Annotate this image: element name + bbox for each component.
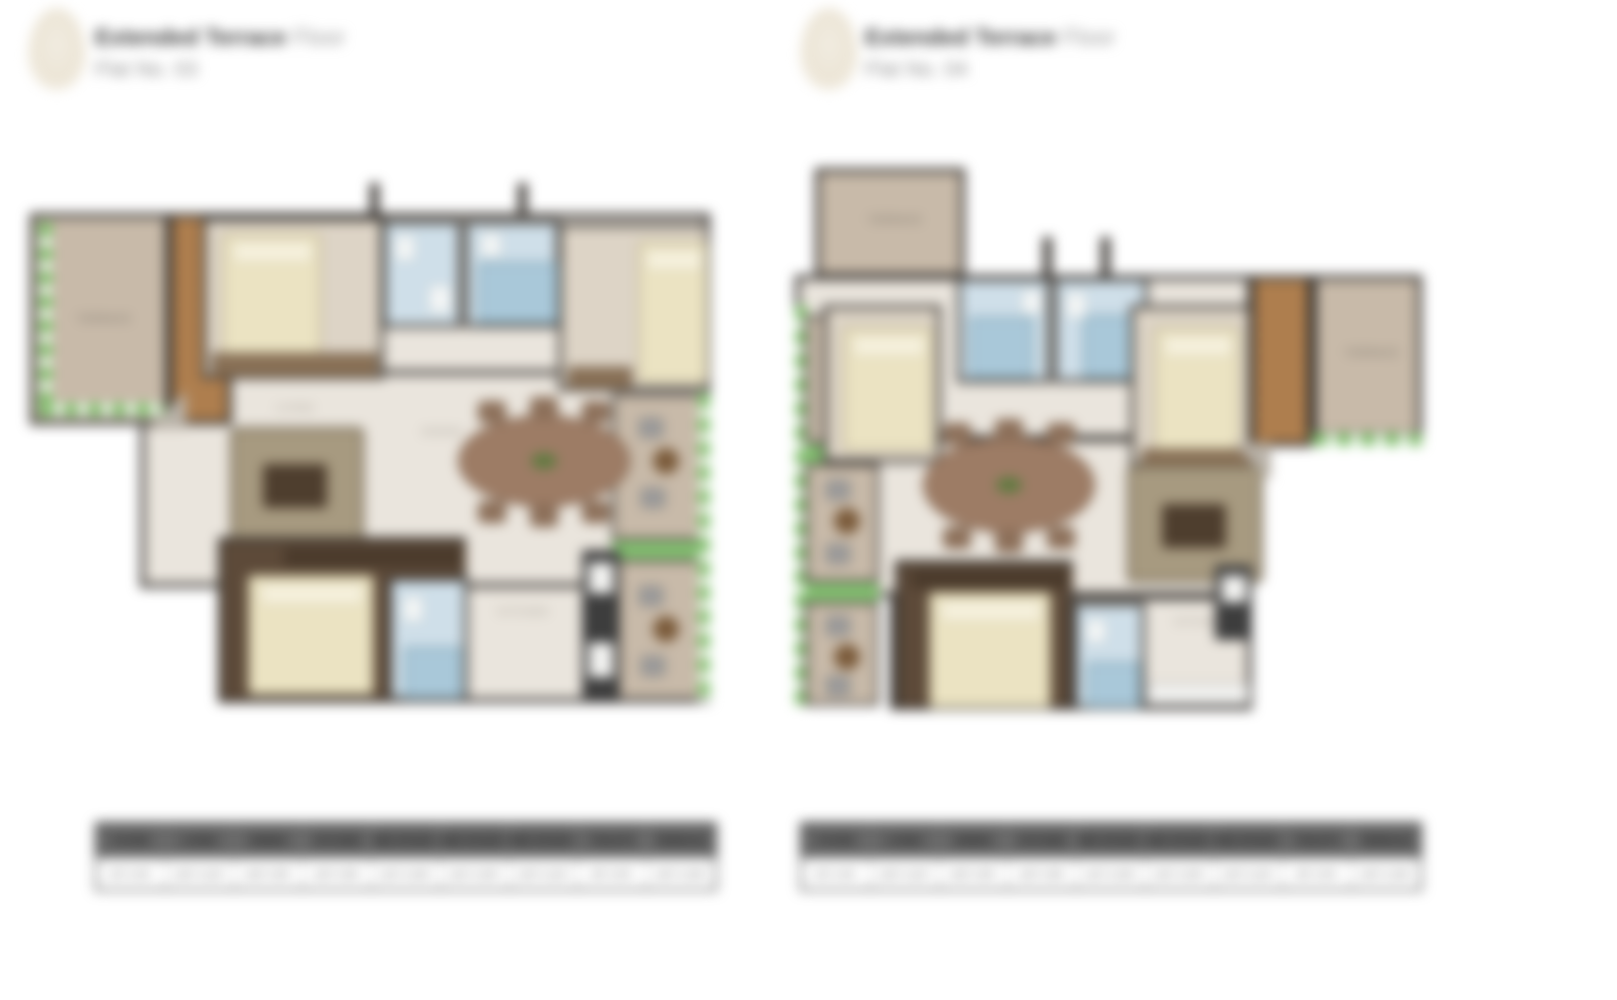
centerpiece [996,477,1022,493]
schedule-header-cell: DINING [940,824,1009,857]
wardrobe [212,353,378,377]
wardrobe [282,545,466,569]
schedule-header-row: FOYER LIVING DINING KITCHEN BED ROOM 1 B… [802,824,1420,857]
flat-number: Flat No. 03 [95,55,345,85]
dining-chair [582,501,610,523]
pillow [232,241,314,263]
toilet-2 [464,220,560,328]
chair [639,418,663,438]
schedule-value-cell: 12'6" X 11'0" [871,858,940,889]
balcony-2 [612,559,710,701]
dining-chair [995,531,1023,553]
pillow [940,600,1041,622]
schedule-header-cell: LIVING [166,824,235,857]
bedroom-3 [558,223,710,391]
schedule-value-cell: 12'0" X 11'0" [510,858,579,889]
wash-basin [1085,618,1107,644]
kitchen-counter [1215,565,1252,640]
wash-basin [1021,289,1043,315]
bed [843,327,933,451]
dining-chair [530,505,558,527]
page: Extended Terrace Floor Flat No. 03 Exten… [0,0,1617,1000]
schedule-header-cell: BED ROOM 3 [1215,824,1284,857]
chair [641,488,665,508]
toilet-1 [957,277,1051,383]
plan-header-right: Extended Terrace Floor Flat No. 04 [865,22,1115,85]
wash-basin [480,232,502,258]
dining-chair [943,423,971,445]
wall-stub [1043,237,1052,275]
schedule-header-cell: FOYER [97,824,166,857]
pillow [852,335,926,357]
flat-number: Flat No. 04 [865,55,1115,85]
round-table [834,508,860,534]
terrace: TERRACE [1312,275,1422,437]
dining-chair [995,419,1023,441]
living-label: LIVING [276,403,315,414]
schedule-value-cell: 11'0" X 10'6" [372,858,441,889]
round-table [834,644,860,670]
toilet-1 [382,220,462,328]
schedule-value-cell: 11'0" X 10'6" [1077,858,1146,889]
schedule-header-cell: FOYER [802,824,871,857]
schedule-header-cell: TERRACE [1352,824,1420,857]
dining-chair [582,401,610,423]
schedule-value-cell: 11'6" X 10'0" [441,858,510,889]
round-table [653,448,679,474]
terrace-label: TERRACE [1345,348,1400,359]
schedule-header-cell: KITCHEN [1008,824,1077,857]
bed [929,592,1051,708]
planter-band [805,583,879,601]
schedule-value-cell: 10'6" X 8'0" [235,858,304,889]
dining-chair [530,397,558,419]
schedule-header-cell: BED ROOM 1 [1077,824,1146,857]
page-title: Extended Terrace Floor [95,22,345,52]
balcony-3 [805,601,879,706]
floor-plan-flat-04: TERRACE [795,165,1425,740]
plant-strip [698,393,710,701]
schedule-header-cell: TERRACE [647,824,715,857]
coffee-table [263,464,327,508]
brand-logo [800,8,858,90]
schedule-header-cell: BED ROOM 2 [1146,824,1215,857]
dining-label: DINING [422,427,463,438]
shower-area [969,317,1033,379]
bed [638,241,708,383]
wash-basin [394,234,416,262]
dining-table [923,437,1095,533]
schedule-header-row: FOYER LIVING DINING KITCHEN BED ROOM 1 B… [97,824,715,857]
schedule-header-cell: TOILETS [1283,824,1352,857]
chair [826,480,850,500]
schedule-value-cell: 14'0" X 10'6" [1352,858,1420,889]
wardrobe [568,367,632,389]
schedule-header-cell: BED ROOM 3 [510,824,579,857]
plant-strip [1312,433,1422,446]
hob [588,642,614,678]
entry-door-swing [148,391,186,429]
sofa-set [230,427,364,541]
bed [1154,327,1240,457]
pillow [260,583,364,605]
shower-area [478,262,558,324]
floor-plan-flat-03: TERRACE [30,165,720,740]
schedule-value-cell: 8'0" X 5'0" [578,858,647,889]
dining-chair [478,401,506,423]
plant-strip [39,222,52,417]
pillow [645,249,702,271]
chair [826,676,850,696]
schedule-value-cell: 14'0" X 10'6" [647,858,715,889]
wash-basin [1065,291,1087,319]
sink [1221,575,1247,603]
round-table [653,616,679,642]
title-light: Floor [1063,24,1115,50]
toilet-3 [1073,602,1145,710]
area-schedule-flat-03: FOYER LIVING DINING KITCHEN BED ROOM 1 B… [95,822,717,891]
schedule-value-row: 6'0" X 4'6" 12'6" X 11'0" 10'6" X 8'0" 1… [802,857,1420,889]
entry-door-swing [1233,443,1271,481]
planter-band [612,541,710,559]
schedule-value-cell: 11'6" X 10'0" [1146,858,1215,889]
dining-chair [1047,527,1075,549]
wc [428,284,452,314]
schedule-value-cell: 12'6" X 11'0" [166,858,235,889]
bed [248,575,374,695]
bed [222,233,321,363]
title-bold: Extended Terrace [95,24,286,50]
schedule-value-row: 6'0" X 4'6" 12'6" X 11'0" 10'6" X 8'0" 1… [97,857,715,889]
terrace-label: TERRACE [77,314,132,325]
brand-logo [28,8,86,90]
schedule-header-cell: LIVING [871,824,940,857]
shower-area [404,647,462,699]
page-title: Extended Terrace Floor [865,22,1115,52]
schedule-value-cell: 10'6" X 8'0" [940,858,1009,889]
pillow [1163,335,1234,357]
dining-table [458,415,630,507]
balcony-2 [805,463,879,583]
schedule-value-cell: 12'0" X 11'0" [1215,858,1284,889]
plant-strip [39,403,164,416]
schedule-value-cell: 10'0" X 8'6" [303,858,372,889]
terrace-label: TERRACE [868,215,923,226]
bedroom-2 [823,305,941,463]
coffee-table [1162,504,1226,548]
title-bold: Extended Terrace [865,24,1056,50]
schedule-value-cell: 6'0" X 4'6" [97,858,166,889]
wall-stub [1101,237,1110,275]
toilet-3 [388,577,468,701]
sink [588,562,614,594]
plan-header-left: Extended Terrace Floor Flat No. 03 [95,22,345,85]
schedule-header-cell: TOILETS [578,824,647,857]
kitchen-label: KITCHEN [498,607,549,618]
dining-chair [943,527,971,549]
wall-stub [518,183,527,217]
kitchen-counter [582,550,620,700]
chair [826,616,850,636]
terrace-top: TERRACE [815,168,965,278]
chair [639,586,663,606]
chair [641,656,665,676]
wash-basin [402,595,424,623]
schedule-header-cell: BED ROOM 2 [441,824,510,857]
kitchen-counter-2 [1147,683,1249,705]
wardrobe [909,568,1073,590]
master-bedroom [895,560,1073,710]
title-light: Floor [293,24,345,50]
schedule-header-cell: DINING [235,824,304,857]
wood-deck [1250,275,1312,447]
area-schedule-flat-04: FOYER LIVING DINING KITCHEN BED ROOM 1 B… [800,822,1422,891]
shower-area [1087,662,1141,708]
centerpiece [531,453,557,469]
schedule-header-cell: KITCHEN [303,824,372,857]
schedule-header-cell: BED ROOM 1 [372,824,441,857]
wall-stub [370,183,379,217]
dining-chair [478,501,506,523]
schedule-value-cell: 8'0" X 5'0" [1283,858,1352,889]
bedroom-2 [202,217,384,379]
chair [826,544,850,564]
dining-chair [1047,423,1075,445]
schedule-value-cell: 10'0" X 8'6" [1008,858,1077,889]
schedule-value-cell: 6'0" X 4'6" [802,858,871,889]
